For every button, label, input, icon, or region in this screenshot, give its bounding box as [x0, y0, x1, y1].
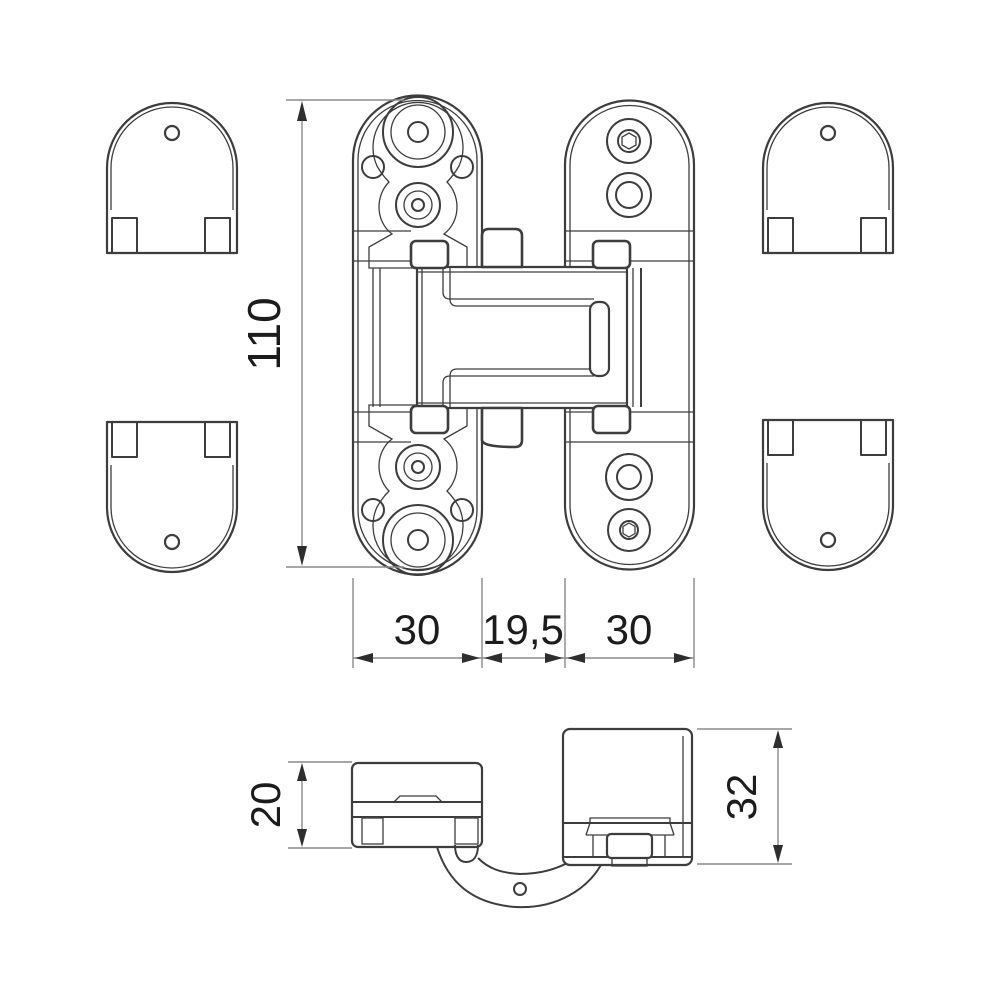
- dimension-depth-20: 20: [242, 762, 352, 848]
- door-leaf-block: [352, 763, 482, 862]
- dim-label-door-leaf-depth: 20: [242, 782, 289, 829]
- cap-screw-hole: [821, 126, 835, 140]
- cover-cap-top-left: [107, 103, 237, 253]
- screw-hole: [608, 509, 650, 551]
- cover-cap-bottom-right: [763, 420, 893, 570]
- screw-hole: [408, 530, 428, 550]
- screw-hole: [606, 454, 652, 500]
- screw-hole: [408, 122, 428, 142]
- dim-label-door-plate-width: 30: [394, 606, 441, 653]
- arm-hole: [514, 883, 526, 895]
- drawing-canvas: 110 30 19,5 30: [0, 0, 1000, 1000]
- cover-cap-bottom-left: [107, 422, 237, 572]
- technical-drawing: 110 30 19,5 30: [0, 0, 1000, 1000]
- dim-label-center-gap: 19,5: [482, 606, 564, 653]
- frame-block: [563, 729, 692, 866]
- screw-hole: [362, 499, 384, 521]
- dim-label-frame-plate-width: 30: [606, 606, 653, 653]
- arm-end-cap: [590, 302, 609, 376]
- knuckle-tab-top: [482, 229, 522, 267]
- pivot-block: [411, 406, 448, 433]
- dimension-row-widths: 30 19,5 30: [353, 578, 694, 668]
- knuckle-tab-bottom: [482, 408, 522, 447]
- dim-label-overall-height: 110: [238, 297, 290, 370]
- dimension-depth-32: 32: [697, 729, 792, 864]
- screw-hole: [362, 156, 384, 178]
- cap-screw-hole: [821, 533, 835, 547]
- cover-cap-top-right: [763, 103, 893, 253]
- side-view: 20 32: [242, 729, 792, 907]
- screw-hole: [607, 173, 651, 217]
- cap-screw-hole: [165, 126, 179, 140]
- pivot-block: [593, 406, 630, 433]
- screw-hole: [607, 119, 651, 163]
- hinge-arm-front: [411, 229, 630, 447]
- pivot-block: [411, 241, 448, 268]
- dim-label-frame-side-depth: 32: [718, 774, 765, 821]
- cap-screw-hole: [165, 535, 179, 549]
- front-view: 110 30 19,5 30: [107, 96, 893, 669]
- pivot-block: [593, 241, 630, 268]
